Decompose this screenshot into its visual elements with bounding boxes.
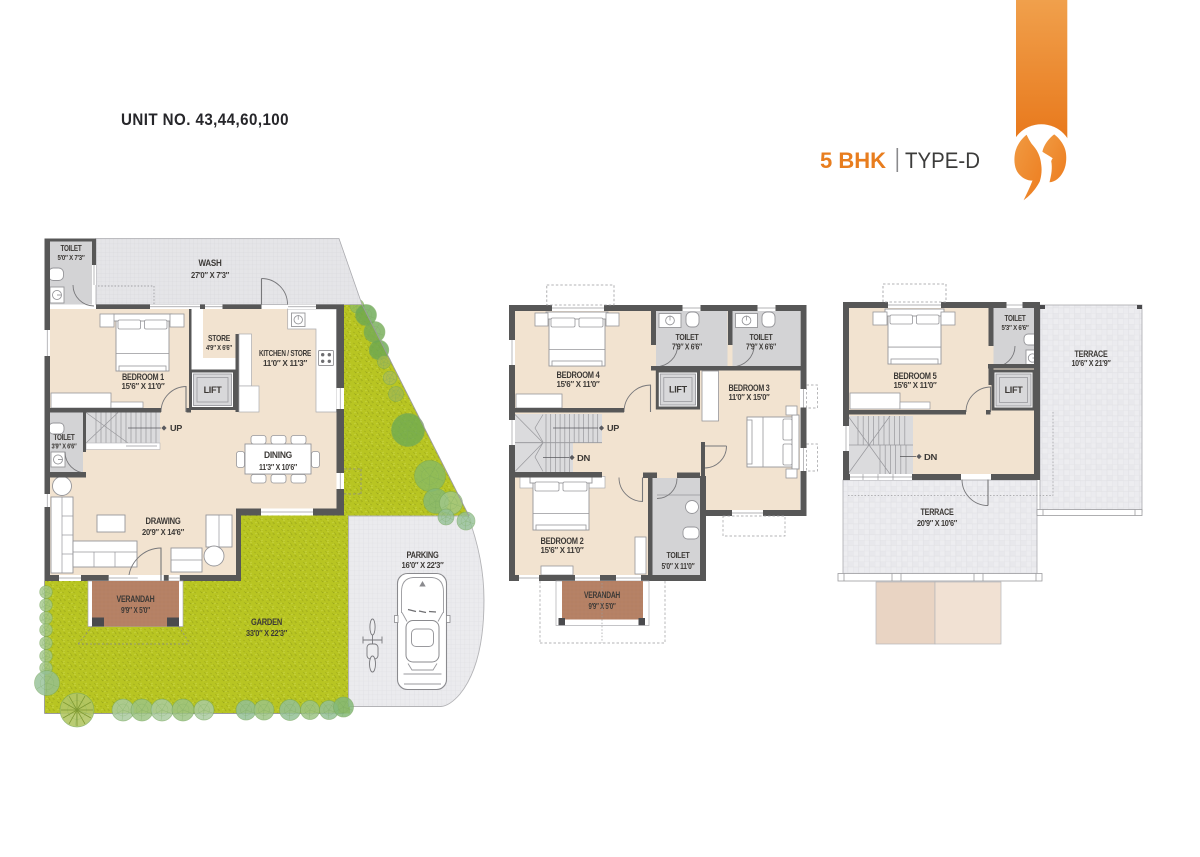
svg-text:UNIT NO. 43,44,60,100: UNIT NO. 43,44,60,100: [121, 110, 289, 129]
svg-text:VERANDAH: VERANDAH: [584, 590, 620, 600]
svg-text:5′3″ X 6′6″: 5′3″ X 6′6″: [1002, 323, 1030, 332]
svg-text:BEDROOM 3: BEDROOM 3: [729, 383, 770, 393]
svg-text:TOILET: TOILET: [750, 332, 774, 342]
svg-text:20′9″ X 14′6″: 20′9″ X 14′6″: [142, 527, 184, 537]
svg-text:BEDROOM 5: BEDROOM 5: [894, 371, 937, 381]
svg-text:DN: DN: [577, 453, 590, 463]
svg-text:10′6″ X 21′9″: 10′6″ X 21′9″: [1072, 359, 1111, 368]
svg-text:15′6″ X 11′0″: 15′6″ X 11′0″: [557, 380, 600, 389]
svg-text:15′6″ X 11′0″: 15′6″ X 11′0″: [541, 546, 584, 555]
svg-text:5 BHK: 5 BHK: [820, 148, 886, 173]
svg-text:15′6″ X 11′0″: 15′6″ X 11′0″: [894, 381, 937, 390]
svg-text:TOILET: TOILET: [61, 244, 82, 253]
svg-text:BEDROOM 2: BEDROOM 2: [541, 536, 584, 546]
svg-text:DRAWING: DRAWING: [146, 516, 181, 527]
svg-text:LIFT: LIFT: [669, 385, 688, 395]
svg-text:7′9″ X 6′6″: 7′9″ X 6′6″: [672, 343, 702, 352]
svg-text:7′9″ X 6′6″: 7′9″ X 6′6″: [746, 343, 776, 352]
svg-text:5′0″ X 11′0″: 5′0″ X 11′0″: [662, 562, 695, 571]
svg-text:5′0″ X 7′3″: 5′0″ X 7′3″: [58, 253, 86, 262]
svg-text:LIFT: LIFT: [1005, 385, 1024, 395]
svg-text:16′0″ X 22′3″: 16′0″ X 22′3″: [402, 560, 444, 570]
svg-text:33′0″ X 22′3″: 33′0″ X 22′3″: [246, 628, 287, 638]
svg-text:20′9″ X 10′6″: 20′9″ X 10′6″: [917, 519, 957, 528]
svg-text:VERANDAH: VERANDAH: [117, 594, 155, 604]
svg-text:TERRACE: TERRACE: [921, 507, 954, 517]
svg-text:TOILET: TOILET: [667, 550, 691, 560]
svg-text:27′0″ X 7′3″: 27′0″ X 7′3″: [191, 270, 229, 280]
svg-text:BEDROOM 4: BEDROOM 4: [557, 370, 600, 380]
svg-text:GARDEN: GARDEN: [251, 617, 282, 628]
svg-text:15′6″ X 11′0″: 15′6″ X 11′0″: [122, 382, 165, 391]
svg-text:TYPE-D: TYPE-D: [905, 148, 980, 173]
svg-text:DN: DN: [924, 452, 937, 462]
svg-text:TOILET: TOILET: [676, 332, 700, 342]
svg-text:3′9″ X 6′6″: 3′9″ X 6′6″: [52, 444, 78, 451]
svg-text:LIFT: LIFT: [204, 385, 223, 395]
svg-text:BEDROOM 1: BEDROOM 1: [122, 372, 164, 382]
svg-text:UP: UP: [607, 423, 620, 433]
svg-text:WASH: WASH: [199, 258, 222, 269]
svg-text:UP: UP: [170, 423, 183, 433]
svg-text:11′0″ X 15′0″: 11′0″ X 15′0″: [729, 393, 770, 402]
svg-text:TOILET: TOILET: [1005, 314, 1026, 323]
svg-text:4′9″ X 6′6″: 4′9″ X 6′6″: [206, 343, 233, 352]
svg-text:STORE: STORE: [208, 333, 230, 343]
svg-text:KITCHEN / STORE: KITCHEN / STORE: [259, 348, 311, 358]
svg-text:11′3″ X 10′6″: 11′3″ X 10′6″: [259, 462, 297, 472]
svg-text:9′9″ X 5′0″: 9′9″ X 5′0″: [121, 606, 150, 615]
svg-text:11′0″ X 11′3″: 11′0″ X 11′3″: [263, 359, 307, 368]
svg-text:TERRACE: TERRACE: [1075, 349, 1108, 359]
svg-text:DINING: DINING: [264, 450, 292, 461]
